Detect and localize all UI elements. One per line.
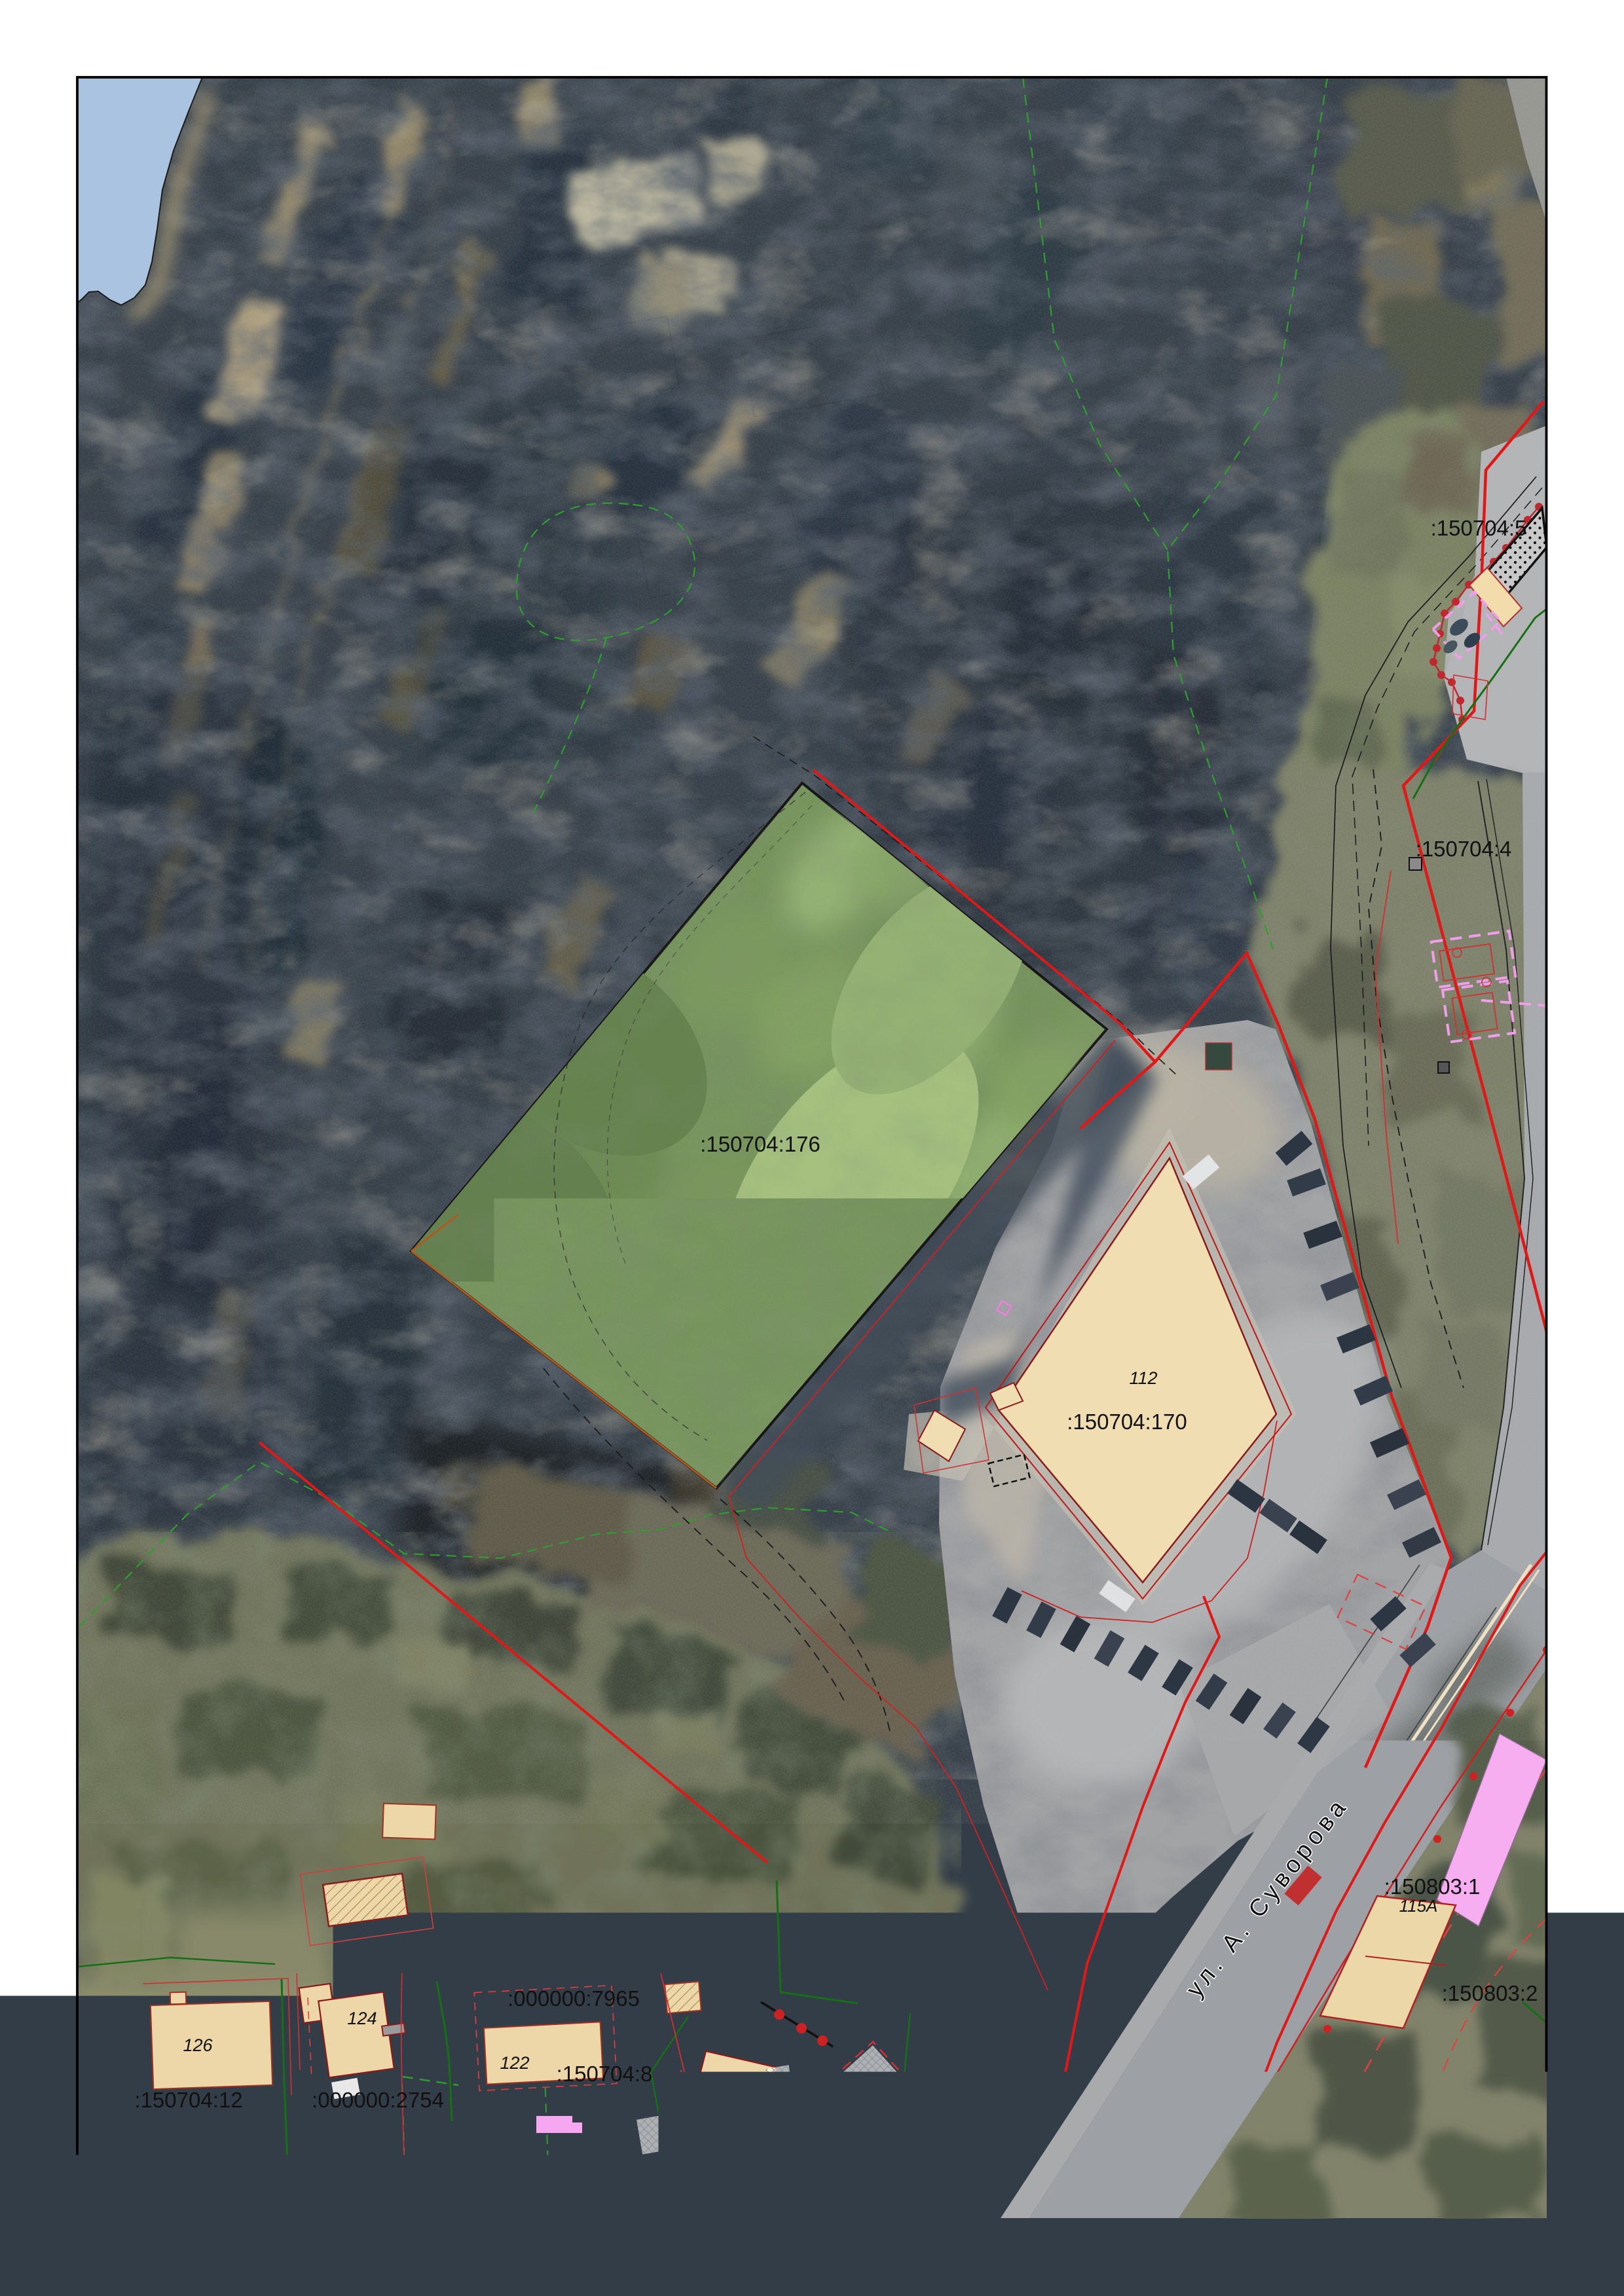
svg-text::150803:6: :150803:6 <box>1151 2196 1247 2220</box>
svg-text::150704:3: :150704:3 <box>673 2167 769 2191</box>
svg-text::150704:176: :150704:176 <box>700 1132 821 1156</box>
svg-text::150803:2: :150803:2 <box>1442 1981 1538 2005</box>
svg-text::150803:1: :150803:1 <box>1384 1874 1481 1899</box>
svg-text::000000:7965: :000000:7965 <box>507 1986 640 2011</box>
svg-text:115A: 115A <box>1399 1896 1438 1916</box>
svg-text::150704:57: :150704:57 <box>138 2192 246 2216</box>
svg-text::150704:12: :150704:12 <box>134 2088 242 2112</box>
svg-text::150704:2: :150704:2 <box>769 2106 865 2130</box>
svg-text:124: 124 <box>347 2009 377 2028</box>
svg-text:126: 126 <box>183 2035 213 2055</box>
svg-text:120: 120 <box>742 2093 771 2113</box>
svg-text::150704:4: :150704:4 <box>1416 837 1512 861</box>
svg-text::150704:8: :150704:8 <box>557 2062 653 2086</box>
svg-text::150704:170: :150704:170 <box>1067 1410 1187 1434</box>
svg-text::000000:2754: :000000:2754 <box>312 2088 444 2112</box>
svg-text:122: 122 <box>500 2053 529 2073</box>
svg-text::150704:175: :150704:175 <box>312 2197 433 2221</box>
svg-text::150704:5: :150704:5 <box>1431 516 1527 540</box>
svg-text:1:884: 1:884 <box>1464 2178 1543 2212</box>
svg-text:112: 112 <box>1129 1368 1157 1388</box>
